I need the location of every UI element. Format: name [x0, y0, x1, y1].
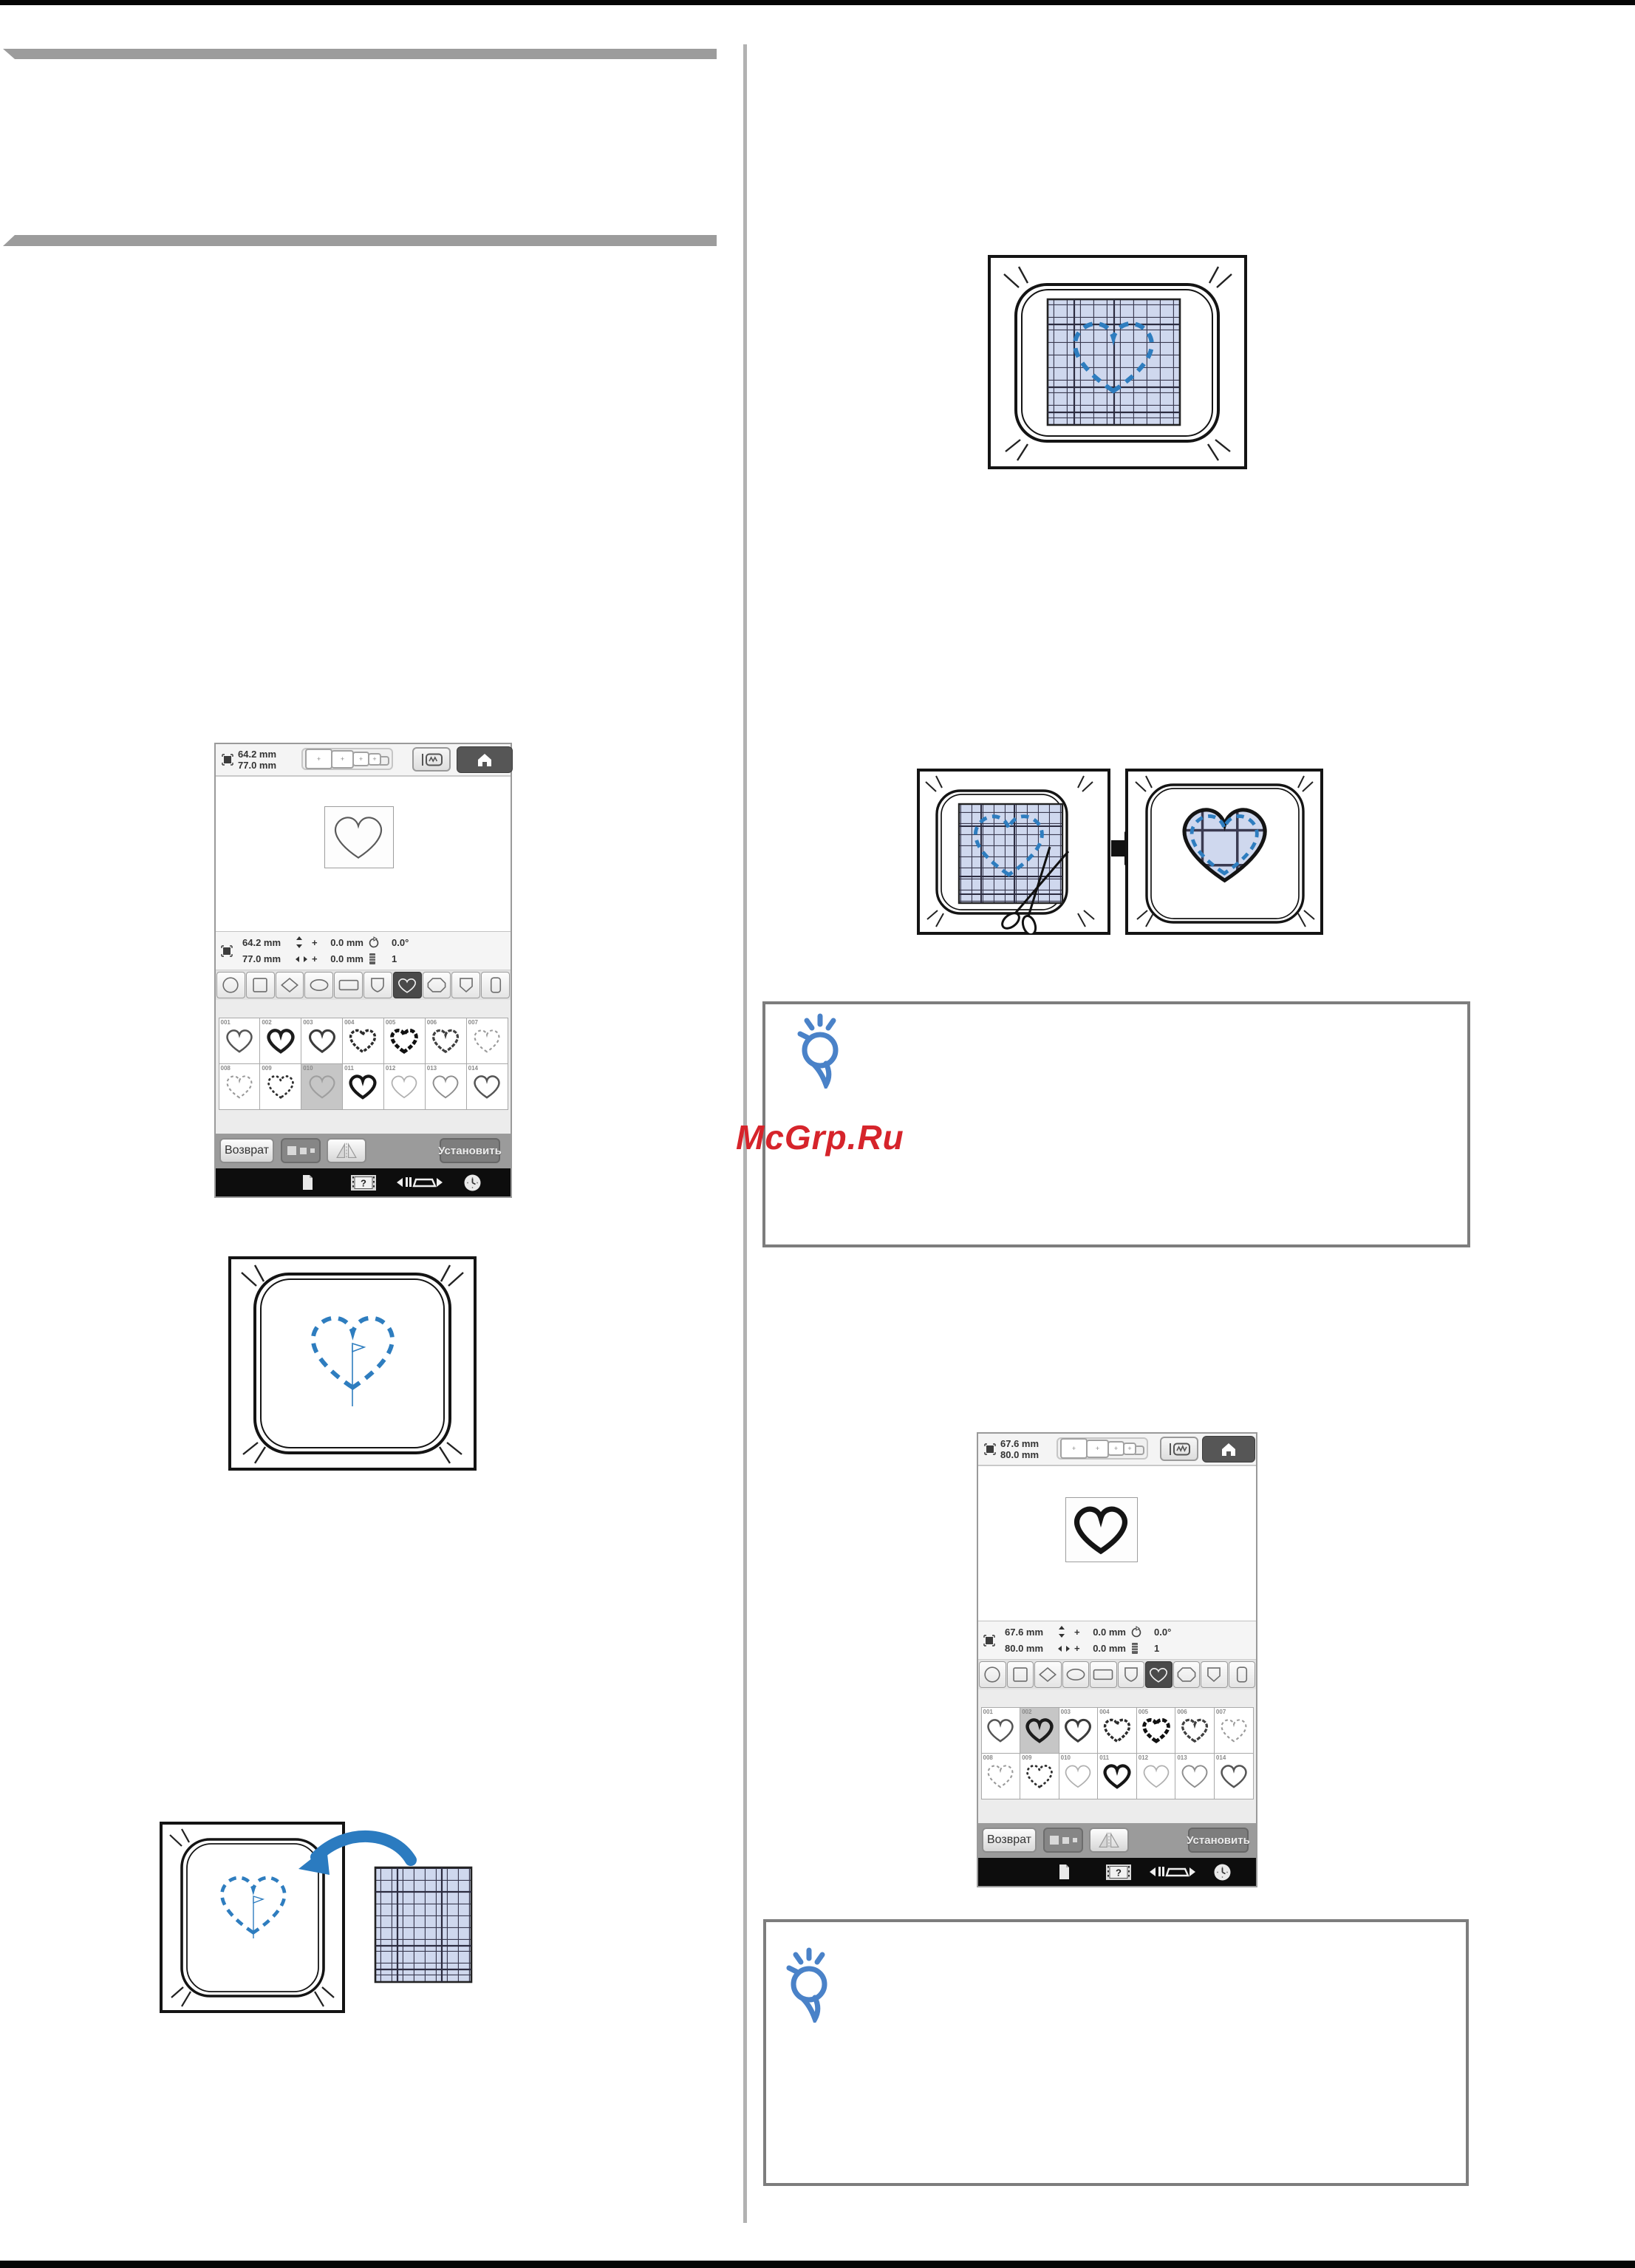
hoop-size-selector[interactable]: + + + +	[1057, 1437, 1148, 1460]
manual-page: 64.2 mm 77.0 mm + + + +	[0, 0, 1635, 2268]
presser-foot-button[interactable]	[397, 1174, 443, 1191]
pattern-heart-icon	[305, 1072, 339, 1100]
shape-button-square[interactable]	[1007, 1661, 1034, 1688]
thread-spool-icon	[1130, 1642, 1139, 1655]
badge-icon	[454, 974, 479, 996]
pattern-heart-icon	[387, 1072, 421, 1100]
pattern-number: 003	[1061, 1709, 1071, 1715]
pattern-cell-009[interactable]: 009	[259, 1063, 301, 1110]
mirror-icon	[1098, 1831, 1120, 1849]
pattern-heart-icon	[264, 1026, 298, 1055]
pattern-number: 004	[1099, 1709, 1109, 1715]
screen1-canvas[interactable]	[216, 777, 511, 932]
home-icon	[476, 752, 494, 768]
pattern-number: 001	[983, 1709, 993, 1715]
roundrect-icon	[1229, 1663, 1255, 1686]
rotate-icon	[1130, 1626, 1142, 1638]
hoop-size-small[interactable]: +	[1107, 1441, 1124, 1456]
status-dy: 0.0 mm	[1085, 1627, 1130, 1638]
status-dx: 0.0 mm	[322, 953, 368, 964]
status-width: 67.6 mm	[1005, 1627, 1058, 1638]
pattern-heart-icon	[346, 1072, 380, 1100]
pattern-cell-010[interactable]: 010	[301, 1063, 343, 1110]
pattern-heart-icon	[1023, 1762, 1057, 1790]
pattern-heart-icon	[1178, 1716, 1212, 1744]
shape-button-ellipse[interactable]	[304, 972, 333, 998]
pattern-cell-014[interactable]: 014	[1214, 1753, 1254, 1799]
watermark: McGrp.Ru	[736, 1117, 904, 1157]
document-button[interactable]	[301, 1174, 314, 1191]
pattern-number: 014	[468, 1065, 478, 1072]
section-heading-bar-bottom	[3, 235, 717, 246]
shape-button-shield[interactable]	[1118, 1661, 1145, 1688]
pattern-number: 014	[1216, 1754, 1226, 1761]
screen2-toolbar: Возврат Установить	[978, 1823, 1256, 1858]
pattern-cell-004[interactable]: 004	[1097, 1707, 1137, 1754]
roundrect-icon	[483, 974, 508, 996]
pattern-heart-icon	[470, 1026, 504, 1055]
shape-button-circle[interactable]	[216, 972, 245, 998]
pattern-size-icon	[984, 1443, 996, 1456]
pattern-cell-002[interactable]: 002	[1020, 1707, 1059, 1754]
size-button[interactable]	[281, 1138, 321, 1163]
pattern-cell-013[interactable]: 013	[1175, 1753, 1215, 1799]
shield-icon	[1119, 1663, 1144, 1686]
pattern-number: 005	[1139, 1709, 1148, 1715]
canvas-heart-outline	[1068, 1500, 1134, 1558]
pattern-heart-icon	[1217, 1762, 1251, 1790]
pattern-heart-icon	[1139, 1762, 1173, 1790]
size-button[interactable]	[1043, 1828, 1083, 1853]
home-button[interactable]	[457, 746, 513, 773]
status-dy: 0.0 mm	[322, 937, 368, 948]
pattern-cell-007[interactable]: 007	[1214, 1707, 1254, 1754]
return-button[interactable]: Возврат	[982, 1828, 1037, 1853]
pattern-cell-001[interactable]: 001	[219, 1018, 261, 1064]
clock-icon	[1213, 1863, 1232, 1882]
rectangle-icon	[1090, 1663, 1116, 1686]
pattern-number: 002	[1022, 1709, 1031, 1715]
embroidery-frame-button[interactable]	[1160, 1437, 1198, 1461]
pattern-number: 008	[983, 1754, 993, 1761]
plus-sign: +	[312, 937, 322, 948]
return-button[interactable]: Возврат	[219, 1138, 274, 1163]
pattern-heart-icon	[983, 1762, 1017, 1790]
pattern-cell-002[interactable]: 002	[259, 1018, 301, 1064]
hoop-size-selector[interactable]: + + + +	[301, 748, 393, 770]
pattern-number: 006	[1177, 1709, 1187, 1715]
shape-button-rectangle[interactable]	[334, 972, 363, 998]
help-movie-icon: ?	[350, 1174, 377, 1192]
status-height: 80.0 mm	[1005, 1643, 1058, 1654]
pattern-heart-icon	[1023, 1716, 1057, 1744]
mirror-button[interactable]	[1089, 1828, 1129, 1853]
pattern-heart-icon	[305, 1026, 339, 1055]
screen2-header: 67.6 mm 80.0 mm + + + +	[978, 1434, 1256, 1466]
diamond-icon	[1035, 1663, 1060, 1686]
status-thread-count: 1	[1154, 1643, 1256, 1654]
machine-screen-1: 64.2 mm 77.0 mm + + + +	[214, 743, 512, 1198]
pattern-number: 004	[344, 1019, 354, 1026]
shape-button-octagon[interactable]	[1173, 1661, 1201, 1688]
pattern-grid: 0010020030040050060070080090100110120130…	[219, 1018, 508, 1109]
thread-spool-icon	[368, 953, 377, 965]
pattern-cell-012[interactable]: 012	[1136, 1753, 1176, 1799]
pattern-heart-icon	[222, 1072, 256, 1100]
pattern-number: 009	[1022, 1754, 1031, 1761]
pattern-cell-007[interactable]: 007	[466, 1018, 508, 1064]
hoop-size-small[interactable]: +	[352, 752, 369, 766]
presser-foot-button[interactable]	[1150, 1864, 1195, 1880]
badge-icon	[1201, 1663, 1226, 1686]
section-heading-bar-top	[3, 49, 717, 59]
screen1-header: 64.2 mm 77.0 mm + + + +	[216, 744, 511, 777]
size-squares-icon	[1050, 1836, 1077, 1845]
pattern-cell-006[interactable]: 006	[1175, 1707, 1215, 1754]
status-width: 64.2 mm	[242, 937, 296, 948]
clock-button[interactable]	[1213, 1863, 1232, 1882]
pattern-height: 80.0 mm	[1000, 1449, 1039, 1460]
figure-hoop-with-fabric	[988, 255, 1247, 469]
panel-cutting	[918, 770, 1109, 935]
screen2-pattern-area: 0010020030040050060070080090100110120130…	[978, 1689, 1256, 1823]
rectangle-icon	[336, 974, 361, 996]
pattern-size-icon	[222, 753, 233, 766]
pattern-heart-icon	[1061, 1762, 1095, 1790]
pattern-number: 010	[1061, 1754, 1071, 1761]
square-icon	[248, 974, 273, 996]
hoop-size-mini[interactable]: +	[1123, 1443, 1136, 1455]
set-button[interactable]: Установить	[1188, 1828, 1249, 1853]
pattern-number: 010	[303, 1065, 313, 1072]
rotate-icon	[368, 936, 380, 948]
shape-button-ellipse[interactable]	[1062, 1661, 1090, 1688]
shape-button-diamond[interactable]	[1034, 1661, 1062, 1688]
svg-text:?: ?	[1116, 1867, 1122, 1878]
ellipse-icon	[307, 974, 332, 996]
pattern-cell-010[interactable]: 010	[1059, 1753, 1099, 1799]
page-top-rule	[0, 0, 1635, 5]
presser-foot-icon	[1150, 1864, 1195, 1880]
home-icon	[1220, 1441, 1238, 1457]
pattern-heart-icon	[222, 1026, 256, 1055]
pattern-number: 002	[262, 1019, 271, 1026]
shape-button-roundrect[interactable]	[1229, 1661, 1256, 1688]
clock-icon	[463, 1174, 482, 1192]
shape-button-octagon[interactable]	[423, 972, 451, 998]
mirror-button[interactable]	[327, 1138, 366, 1163]
pattern-cell-011[interactable]: 011	[1097, 1753, 1137, 1799]
pattern-number: 003	[303, 1019, 313, 1026]
pattern-cell-001[interactable]: 001	[981, 1707, 1021, 1754]
shape-category-row	[216, 970, 511, 1000]
shape-button-heart[interactable]	[393, 972, 422, 998]
pattern-size-icon	[983, 1634, 996, 1647]
octagon-icon	[1174, 1663, 1199, 1686]
pattern-heart-icon	[1139, 1716, 1173, 1744]
pattern-height: 77.0 mm	[238, 760, 276, 771]
square-icon	[1008, 1663, 1033, 1686]
pattern-number: 007	[468, 1019, 478, 1026]
circle-icon	[218, 974, 243, 996]
status-dx: 0.0 mm	[1085, 1643, 1130, 1654]
heart-icon	[1146, 1663, 1171, 1686]
screen1-pattern-area: 0010020030040050060070080090100110120130…	[216, 1000, 511, 1134]
octagon-icon	[424, 974, 449, 996]
shape-button-square[interactable]	[246, 972, 275, 998]
svg-text:?: ?	[361, 1177, 366, 1188]
move-horizontal-icon	[1058, 1645, 1070, 1652]
hoop-size-mini[interactable]: +	[368, 753, 381, 766]
clock-button[interactable]	[463, 1174, 482, 1192]
machine-screen-2: 67.6 mm 80.0 mm + + + +	[977, 1432, 1257, 1887]
shape-button-roundrect[interactable]	[481, 972, 510, 998]
pattern-number: 013	[1177, 1754, 1187, 1761]
pattern-heart-icon	[1217, 1716, 1251, 1744]
pattern-cell-013[interactable]: 013	[425, 1063, 467, 1110]
panel-result	[1127, 770, 1322, 933]
pattern-grid: 0010020030040050060070080090100110120130…	[981, 1707, 1253, 1799]
pattern-number: 007	[1216, 1709, 1226, 1715]
pattern-heart-icon	[1061, 1716, 1095, 1744]
move-vertical-icon	[1058, 1626, 1065, 1638]
embroidery-frame-icon	[420, 752, 443, 767]
pattern-heart-icon	[470, 1072, 504, 1100]
plus-sign: +	[1074, 1643, 1085, 1654]
set-button[interactable]: Установить	[440, 1138, 500, 1163]
diamond-icon	[277, 974, 302, 996]
hoop-size-medium[interactable]: +	[331, 750, 354, 769]
mirror-icon	[335, 1142, 358, 1159]
shape-button-badge[interactable]	[451, 972, 480, 998]
hoop-size-medium[interactable]: +	[1086, 1440, 1109, 1458]
pattern-cell-006[interactable]: 006	[425, 1018, 467, 1064]
plus-sign: +	[312, 953, 322, 964]
pattern-heart-icon	[429, 1072, 462, 1100]
pattern-cell-003[interactable]: 003	[1059, 1707, 1099, 1754]
plus-sign: +	[1074, 1627, 1085, 1638]
screen1-toolbar: Возврат Установить	[216, 1134, 511, 1168]
home-button[interactable]	[1202, 1436, 1255, 1462]
pattern-cell-014[interactable]: 014	[466, 1063, 508, 1110]
figure-hoop-basted-outline	[228, 1256, 477, 1471]
ellipse-icon	[1063, 1663, 1088, 1686]
document-icon	[301, 1174, 314, 1191]
pattern-cell-009[interactable]: 009	[1020, 1753, 1059, 1799]
shield-icon	[365, 974, 390, 996]
pattern-number: 006	[427, 1019, 437, 1026]
pattern-heart-icon	[1100, 1762, 1134, 1790]
shape-category-row	[978, 1660, 1256, 1689]
pattern-number: 001	[221, 1019, 231, 1026]
document-icon	[1058, 1864, 1071, 1880]
pattern-dimensions: 67.6 mm 80.0 mm	[1000, 1438, 1039, 1460]
presser-foot-icon	[397, 1174, 443, 1191]
screen2-status: 67.6 mm + 0.0 mm 0.0° 80.0 mm + 0.0 mm 1	[978, 1621, 1256, 1660]
pattern-cell-008[interactable]: 008	[981, 1753, 1021, 1799]
shape-button-shield[interactable]	[363, 972, 392, 998]
figure-cut-and-result	[917, 769, 1323, 935]
shape-button-heart[interactable]	[1145, 1661, 1173, 1688]
hoop-size-large[interactable]: +	[305, 749, 332, 769]
fabric-swatch	[375, 1867, 471, 1982]
pattern-size-icon	[220, 944, 233, 958]
status-thread-count: 1	[392, 953, 511, 964]
canvas-heart-outline	[327, 809, 390, 864]
hint-bulb-icon	[796, 1012, 844, 1089]
shape-button-diamond[interactable]	[276, 972, 304, 998]
shape-button-badge[interactable]	[1201, 1661, 1228, 1688]
pattern-heart-icon	[1100, 1716, 1134, 1744]
status-angle: 0.0°	[392, 937, 511, 948]
pattern-cell-004[interactable]: 004	[342, 1018, 384, 1064]
shape-button-rectangle[interactable]	[1090, 1661, 1117, 1688]
screen2-canvas[interactable]	[978, 1466, 1256, 1621]
note-box-2	[763, 1919, 1469, 2186]
embroidery-frame-button[interactable]	[412, 747, 451, 772]
hint-bulb-icon	[785, 1946, 833, 2023]
pattern-number: 011	[344, 1065, 354, 1072]
pattern-number: 009	[262, 1065, 271, 1072]
page-bottom-rule	[0, 2261, 1635, 2268]
status-height: 77.0 mm	[242, 953, 296, 964]
pattern-number: 012	[386, 1065, 395, 1072]
pattern-heart-icon	[346, 1026, 380, 1055]
pattern-cell-005[interactable]: 005	[1136, 1707, 1176, 1754]
move-horizontal-icon	[296, 956, 307, 963]
size-squares-icon	[287, 1146, 315, 1155]
embroidery-frame-icon	[1167, 1442, 1191, 1457]
pattern-cell-011[interactable]: 011	[342, 1063, 384, 1110]
screen2-system-bar: ?	[978, 1858, 1256, 1886]
shape-button-circle[interactable]	[979, 1661, 1006, 1688]
hoop-size-large[interactable]: +	[1060, 1438, 1088, 1459]
pattern-width: 64.2 mm	[238, 749, 276, 760]
help-movie-button[interactable]: ?	[1105, 1863, 1132, 1882]
status-angle: 0.0°	[1154, 1627, 1256, 1638]
pattern-cell-012[interactable]: 012	[383, 1063, 426, 1110]
document-button[interactable]	[1058, 1864, 1071, 1880]
help-movie-button[interactable]: ?	[350, 1174, 377, 1192]
pattern-heart-icon	[264, 1072, 298, 1100]
figure-attach-fabric	[160, 1822, 488, 2013]
pattern-cell-003[interactable]: 003	[301, 1018, 343, 1064]
pattern-dimensions: 64.2 mm 77.0 mm	[238, 749, 276, 771]
move-vertical-icon	[296, 936, 303, 948]
pattern-number: 013	[427, 1065, 437, 1072]
pattern-cell-005[interactable]: 005	[383, 1018, 426, 1064]
pattern-number: 012	[1139, 1754, 1148, 1761]
help-movie-icon: ?	[1105, 1863, 1132, 1882]
heart-icon	[395, 974, 420, 996]
pattern-number: 005	[386, 1019, 395, 1026]
pattern-number: 008	[221, 1065, 231, 1072]
pattern-heart-icon	[983, 1716, 1017, 1744]
pattern-width: 67.6 mm	[1000, 1438, 1039, 1449]
pattern-heart-icon	[387, 1026, 421, 1055]
screen1-system-bar: ?	[216, 1168, 511, 1196]
pattern-heart-icon	[429, 1026, 462, 1055]
circle-icon	[980, 1663, 1005, 1686]
pattern-cell-008[interactable]: 008	[219, 1063, 261, 1110]
pattern-number: 011	[1099, 1754, 1109, 1761]
pattern-heart-icon	[1178, 1762, 1212, 1790]
screen1-status: 64.2 mm + 0.0 mm 0.0° 77.0 mm + 0.0 mm 1	[216, 932, 511, 970]
